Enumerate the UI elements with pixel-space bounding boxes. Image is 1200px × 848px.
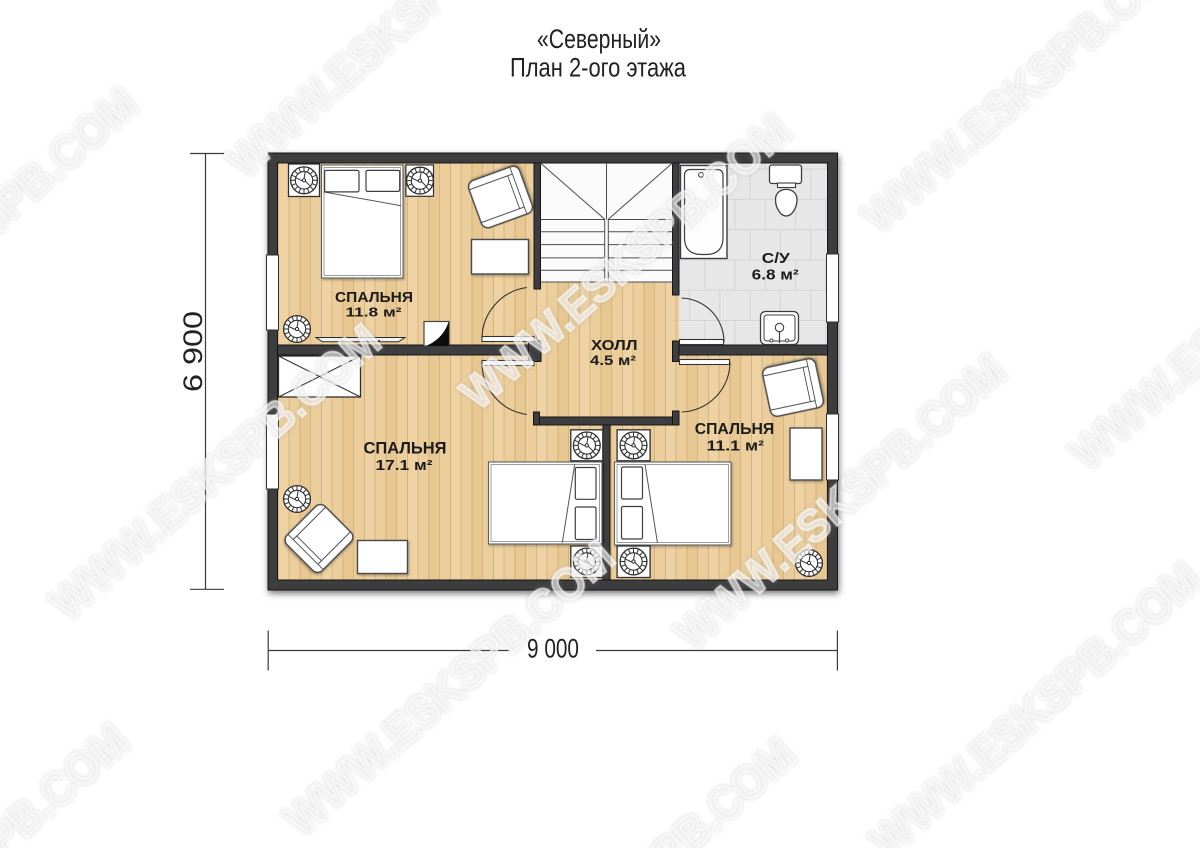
svg-text:4.5 м²: 4.5 м² — [590, 353, 637, 368]
svg-text:«Северный»: «Северный» — [537, 24, 661, 54]
svg-text:17.1 м²: 17.1 м² — [376, 458, 433, 474]
svg-text:6.8 м²: 6.8 м² — [752, 268, 799, 284]
svg-text:СПАЛЬНЯ: СПАЛЬНЯ — [364, 440, 447, 458]
svg-text:С/У: С/У — [762, 250, 791, 267]
svg-text:СПАЛЬНЯ: СПАЛЬНЯ — [695, 421, 775, 438]
svg-text:ХОЛЛ: ХОЛЛ — [591, 338, 638, 354]
svg-text:6 900: 6 900 — [178, 311, 208, 392]
svg-text:11.1 м²: 11.1 м² — [707, 438, 765, 454]
svg-text:План 2-ого этажа: План 2-ого этажа — [510, 53, 687, 83]
